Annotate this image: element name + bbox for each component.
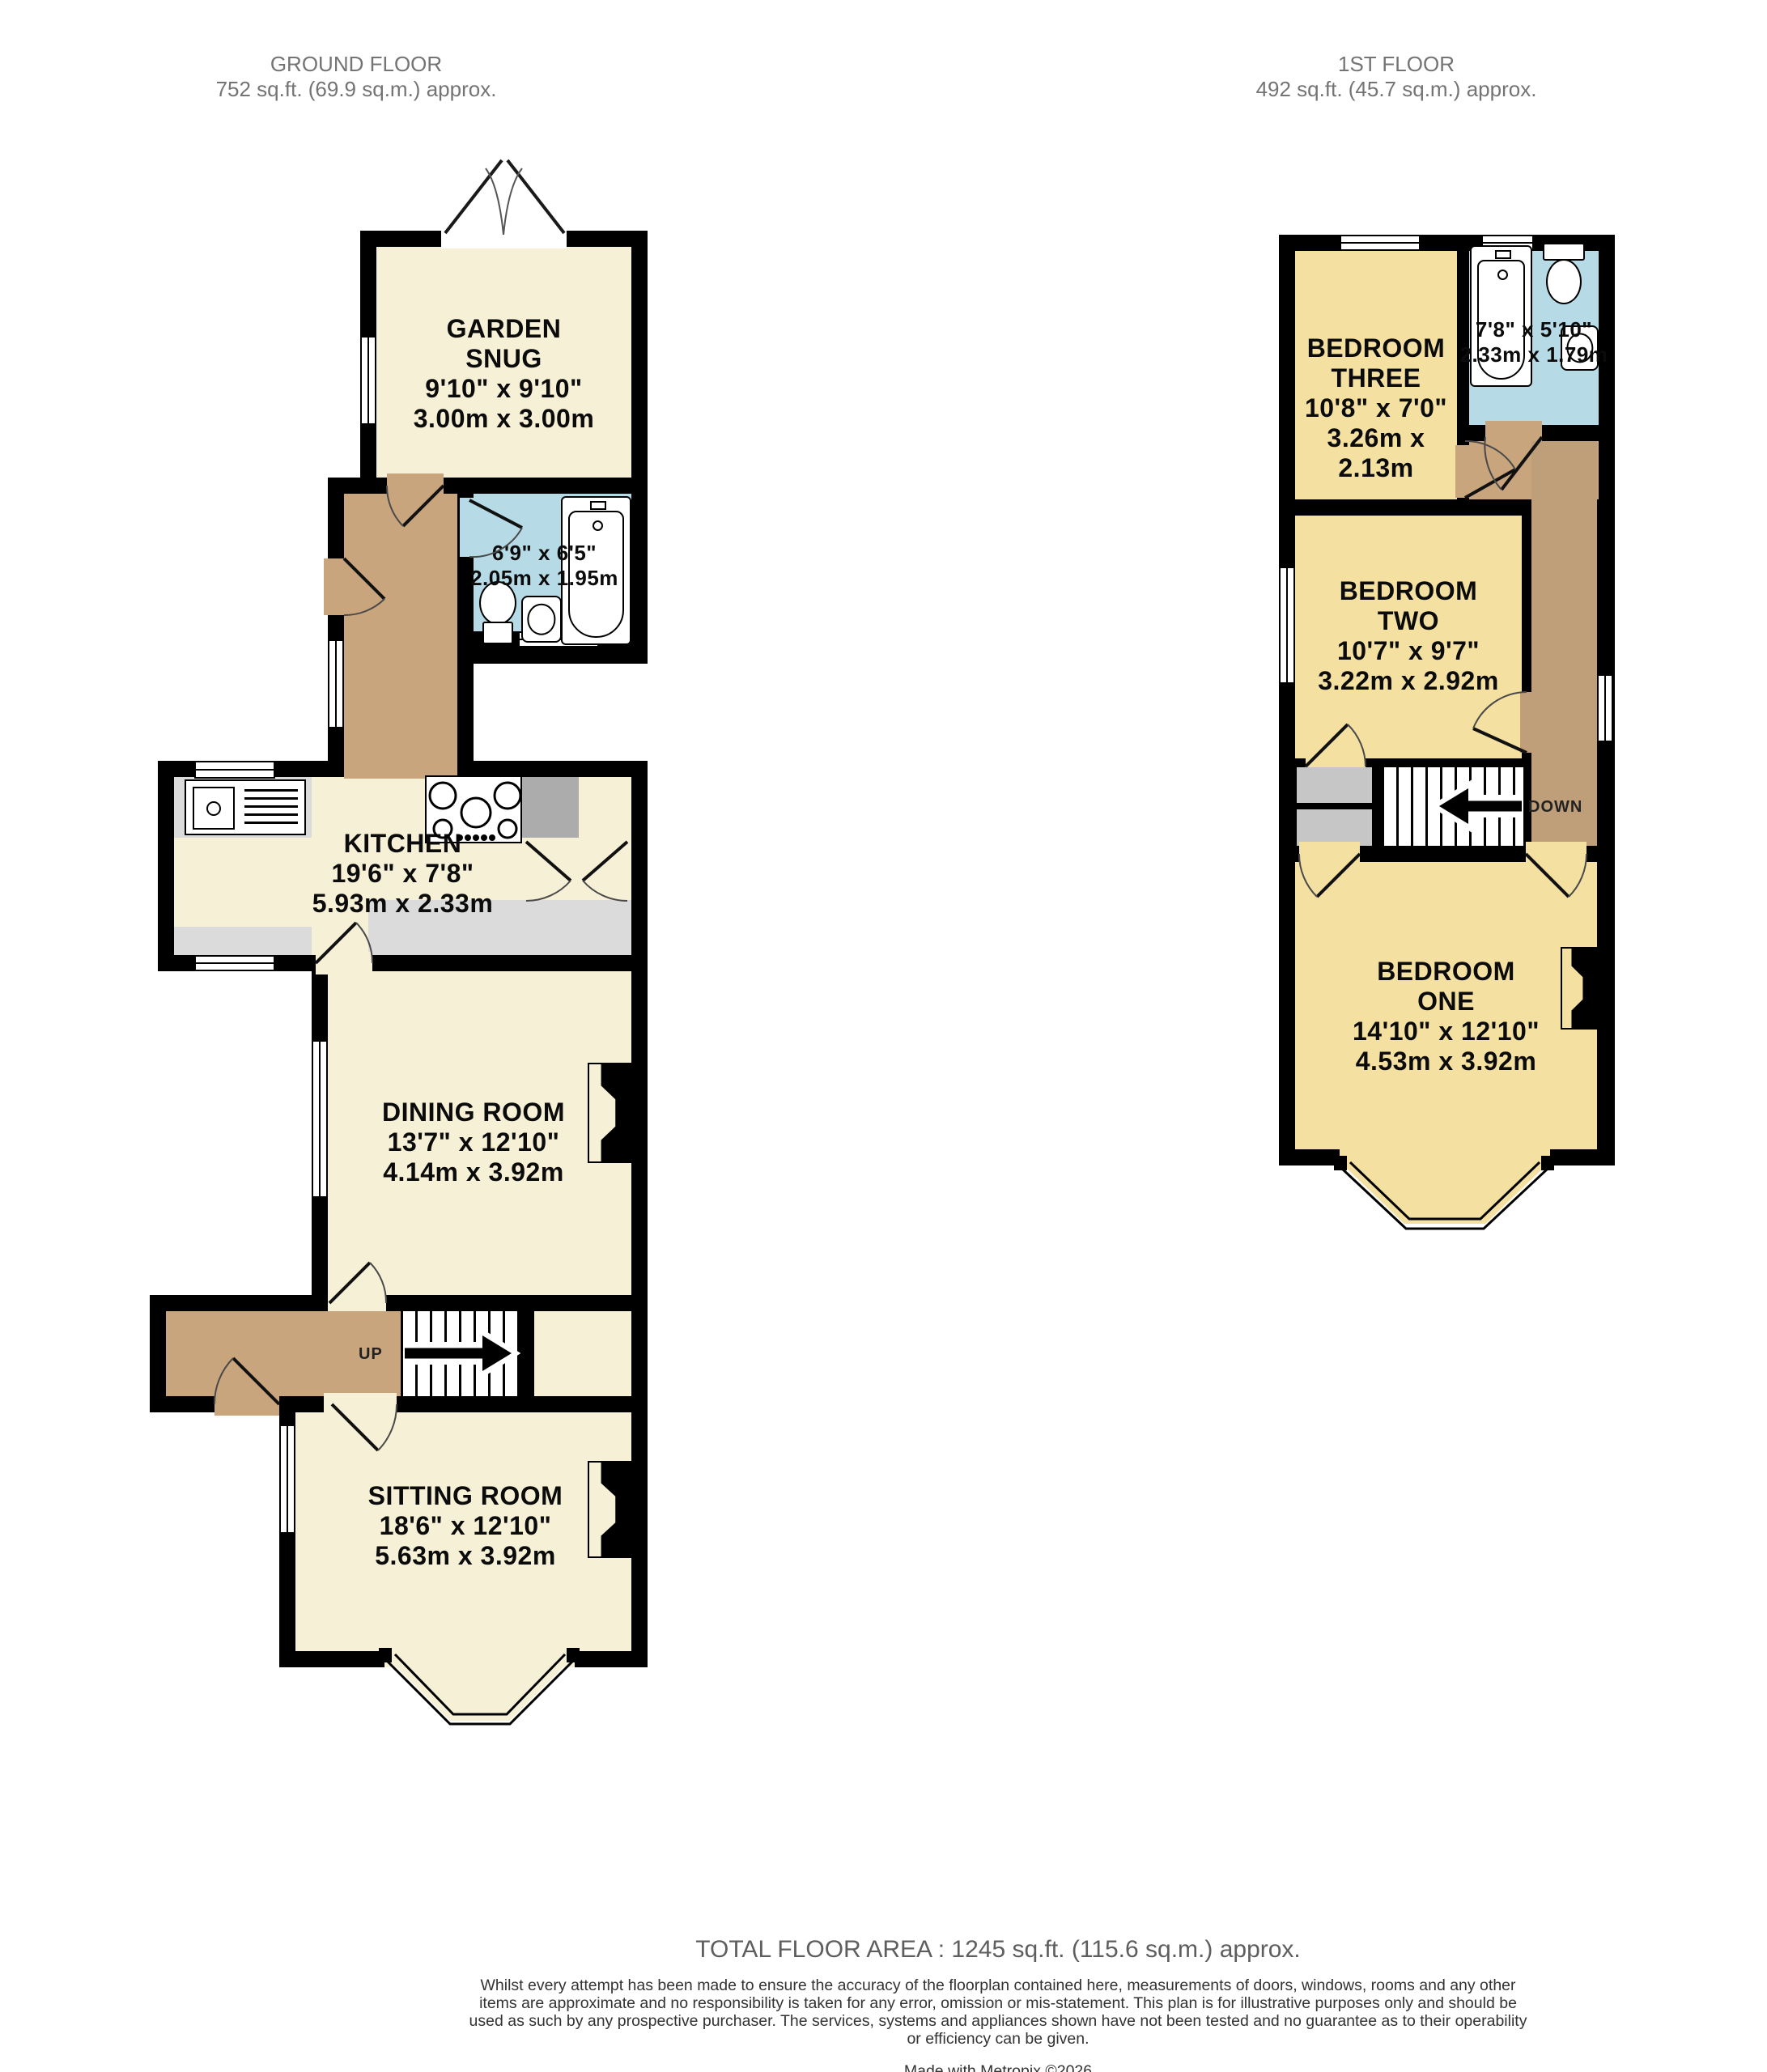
bay-opening <box>384 1648 575 1667</box>
window <box>360 336 376 425</box>
window <box>1597 674 1613 742</box>
sink-icon <box>521 596 562 643</box>
bathroom-gf-label: 6'9" x 6'5" 2.05m x 1.95m <box>449 541 639 591</box>
window <box>279 1424 295 1534</box>
toilet-icon <box>1546 259 1582 304</box>
toilet-icon <box>482 622 513 644</box>
door-gap <box>1520 692 1533 753</box>
bay-opening <box>1340 1146 1550 1165</box>
rear-hall <box>344 494 457 779</box>
bedroom-one-label: BEDROOM ONE 14'10" x 12'10" 4.53m x 3.92… <box>1295 957 1597 1076</box>
window <box>1340 235 1421 251</box>
disclaimer-text: Whilst every attempt has been made to en… <box>464 1976 1532 2048</box>
bedroom-two-label: BEDROOM TWO 10'7" x 9'7" 3.22m x 2.92m <box>1295 576 1522 696</box>
dining-room-label: DINING ROOM 13'7" x 12'10" 4.14m x 3.92m <box>328 1098 619 1187</box>
sitting-room-label: SITTING ROOM 18'6" x 12'10" 5.63m x 3.92… <box>295 1481 635 1571</box>
french-doors-icon <box>445 160 564 235</box>
toilet-icon <box>1543 243 1585 261</box>
kitchen-counter <box>174 927 312 955</box>
kitchen-sink-icon <box>185 779 306 835</box>
bathroom-1f-label: 7'8" x 5'10" 2.33m x 1.79m <box>1457 317 1611 367</box>
kitchen-label: KITCHEN 19'6" x 7'8" 5.93m x 2.33m <box>174 829 631 919</box>
first-floor-area: 492 sq.ft. (45.7 sq.m.) approx. <box>1256 77 1537 101</box>
front-door-gap <box>215 1393 279 1416</box>
stairs-up-label: UP <box>359 1345 383 1364</box>
stairs-up <box>401 1311 518 1396</box>
ground-floor-header: GROUND FLOOR 752 sq.ft. (69.9 sq.m.) app… <box>194 52 518 102</box>
window <box>1279 567 1295 684</box>
ground-floor-title: GROUND FLOOR <box>270 52 442 76</box>
window <box>328 639 344 728</box>
stairs-down <box>1382 767 1523 846</box>
floorplan-page: GROUND FLOOR 752 sq.ft. (69.9 sq.m.) app… <box>0 0 1767 2072</box>
cupboard <box>1297 767 1372 803</box>
french-door-opening <box>441 231 567 248</box>
door-gap <box>324 558 348 615</box>
window <box>312 1040 328 1198</box>
bay-window-icon <box>1334 1156 1554 1229</box>
landing-corridor <box>1531 441 1597 846</box>
bedroom-three-label: BEDROOM THREE 10'8" x 7'0" 3.26m x 2.13m <box>1295 333 1457 483</box>
first-floor-header: 1ST FLOOR 492 sq.ft. (45.7 sq.m.) approx… <box>1234 52 1558 102</box>
stairs-down-label: DOWN <box>1528 798 1582 817</box>
garden-snug-label: GARDEN SNUG 9'10" x 9'10" 3.00m x 3.00m <box>376 314 631 434</box>
ground-floor-area: 752 sq.ft. (69.9 sq.m.) approx. <box>216 77 497 101</box>
door-gap <box>1455 445 1471 498</box>
first-floor-title: 1ST FLOOR <box>1338 52 1455 76</box>
cupboard <box>1297 809 1372 846</box>
window <box>194 761 275 779</box>
total-floor-area: TOTAL FLOOR AREA : 1245 sq.ft. (115.6 sq… <box>431 1936 1565 1964</box>
hall-passage <box>534 1311 631 1396</box>
window <box>194 955 275 971</box>
metropix-credit: Made with Metropix ©2026 <box>464 2062 1532 2072</box>
